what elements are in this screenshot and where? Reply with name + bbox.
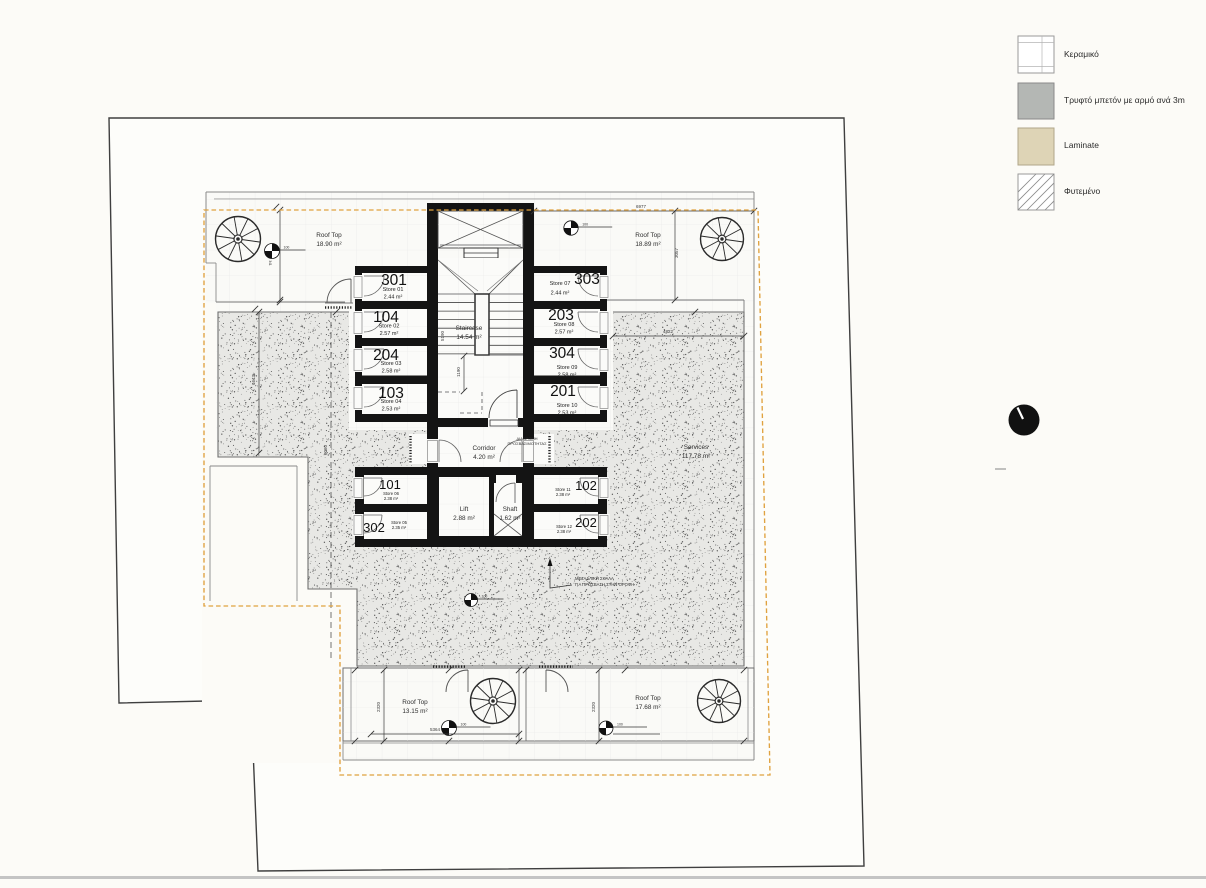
svg-text:6977: 6977 [636, 204, 647, 209]
svg-text:2320: 2320 [591, 701, 596, 712]
svg-text:18.90 m²: 18.90 m² [316, 241, 341, 248]
svg-text:102: 102 [575, 478, 597, 493]
svg-text:Store 04: Store 04 [381, 399, 402, 405]
svg-text:Store 07: Store 07 [550, 281, 571, 287]
svg-text:Laminate: Laminate [1064, 140, 1099, 150]
svg-text:2.38 m²: 2.38 m² [557, 529, 572, 534]
svg-text:ΠΡΟΣΒΑΣΙΜΟΤΗΤΑΣ: ΠΡΟΣΒΑΣΙΜΟΤΗΤΑΣ [507, 441, 547, 446]
svg-text:2.38 m²: 2.38 m² [384, 496, 399, 501]
svg-text:1.62 m²: 1.62 m² [500, 515, 521, 522]
svg-text:Lift: Lift [460, 506, 469, 513]
svg-text:2.44 m²: 2.44 m² [384, 295, 403, 301]
svg-text:4643: 4643 [251, 374, 256, 385]
svg-text:2.53 m²: 2.53 m² [558, 411, 577, 417]
svg-text:2.35 m²: 2.35 m² [392, 525, 407, 530]
svg-text:Store 01: Store 01 [383, 287, 404, 293]
svg-text:Roof Top: Roof Top [635, 695, 661, 702]
svg-text:Τρυφτό μπετόν με αρμό ανά 3m: Τρυφτό μπετόν με αρμό ανά 3m [1064, 95, 1185, 105]
svg-text:1190: 1190 [456, 367, 461, 377]
svg-text:Corridor: Corridor [472, 445, 496, 452]
svg-text:Shaft: Shaft [503, 506, 518, 513]
svg-text:2.53 m²: 2.53 m² [382, 407, 401, 413]
svg-text:9060: 9060 [323, 444, 328, 455]
svg-text:341: 341 [268, 260, 272, 266]
svg-text:2.58 m²: 2.58 m² [382, 369, 401, 375]
svg-text:100: 100 [284, 246, 290, 250]
svg-text:2320: 2320 [376, 701, 381, 712]
svg-text:Store 08: Store 08 [554, 322, 575, 328]
svg-text:Κεραμικό: Κεραμικό [1064, 49, 1099, 59]
svg-text:Store 10: Store 10 [557, 403, 578, 409]
svg-text:2.57 m²: 2.57 m² [555, 330, 574, 336]
svg-text:4822: 4822 [663, 329, 674, 334]
svg-text:100: 100 [582, 223, 588, 227]
svg-text:202: 202 [575, 515, 597, 530]
svg-text:2.88 m²: 2.88 m² [453, 515, 475, 522]
svg-text:17.68 m²: 17.68 m² [635, 704, 660, 711]
svg-text:Staircase: Staircase [456, 325, 483, 332]
svg-text:14.54 m²: 14.54 m² [456, 334, 481, 341]
svg-text:304: 304 [549, 345, 575, 362]
svg-text:ΜΕΤΑΛΛΙΚΗ ΣΚΑΛΑ: ΜΕΤΑΛΛΙΚΗ ΣΚΑΛΑ [575, 576, 614, 581]
svg-text:3057: 3057 [674, 247, 679, 258]
svg-text:Store 02: Store 02 [379, 324, 400, 330]
svg-text:Services: Services [684, 444, 709, 451]
svg-text:18.89 m²: 18.89 m² [635, 241, 660, 248]
svg-text:Roof Top: Roof Top [635, 232, 661, 239]
svg-text:Roof Top: Roof Top [402, 699, 428, 706]
svg-text:Store 03: Store 03 [381, 361, 402, 367]
svg-text:2.57 m²: 2.57 m² [380, 331, 399, 337]
svg-text:302: 302 [363, 520, 385, 535]
svg-text:2.58 m²: 2.58 m² [558, 373, 577, 379]
svg-text:Roof Top: Roof Top [316, 232, 342, 239]
svg-text:ΓΙΑ ΠΡΟΣΒΑΣΗ ΣΤΗΝ ΟΡΟΦΗ: ΓΙΑ ΠΡΟΣΒΑΣΗ ΣΤΗΝ ΟΡΟΦΗ [575, 582, 634, 587]
svg-text:2.44 m²: 2.44 m² [551, 291, 570, 297]
svg-text:4.20 m²: 4.20 m² [473, 454, 495, 461]
svg-text:117.78 m²: 117.78 m² [682, 453, 710, 460]
svg-text:2.38 m²: 2.38 m² [556, 492, 571, 497]
svg-text:303: 303 [574, 271, 600, 288]
svg-text:Store 09: Store 09 [557, 365, 578, 371]
svg-text:13.15 m²: 13.15 m² [402, 708, 427, 715]
svg-text:100: 100 [482, 595, 488, 599]
svg-text:Φυτεμένο: Φυτεμένο [1064, 186, 1101, 196]
svg-text:5190: 5190 [440, 330, 445, 341]
svg-text:5364: 5364 [430, 727, 441, 732]
svg-text:201: 201 [550, 383, 576, 400]
svg-text:100: 100 [461, 723, 467, 727]
svg-text:101: 101 [379, 477, 401, 492]
svg-text:100: 100 [617, 723, 623, 727]
